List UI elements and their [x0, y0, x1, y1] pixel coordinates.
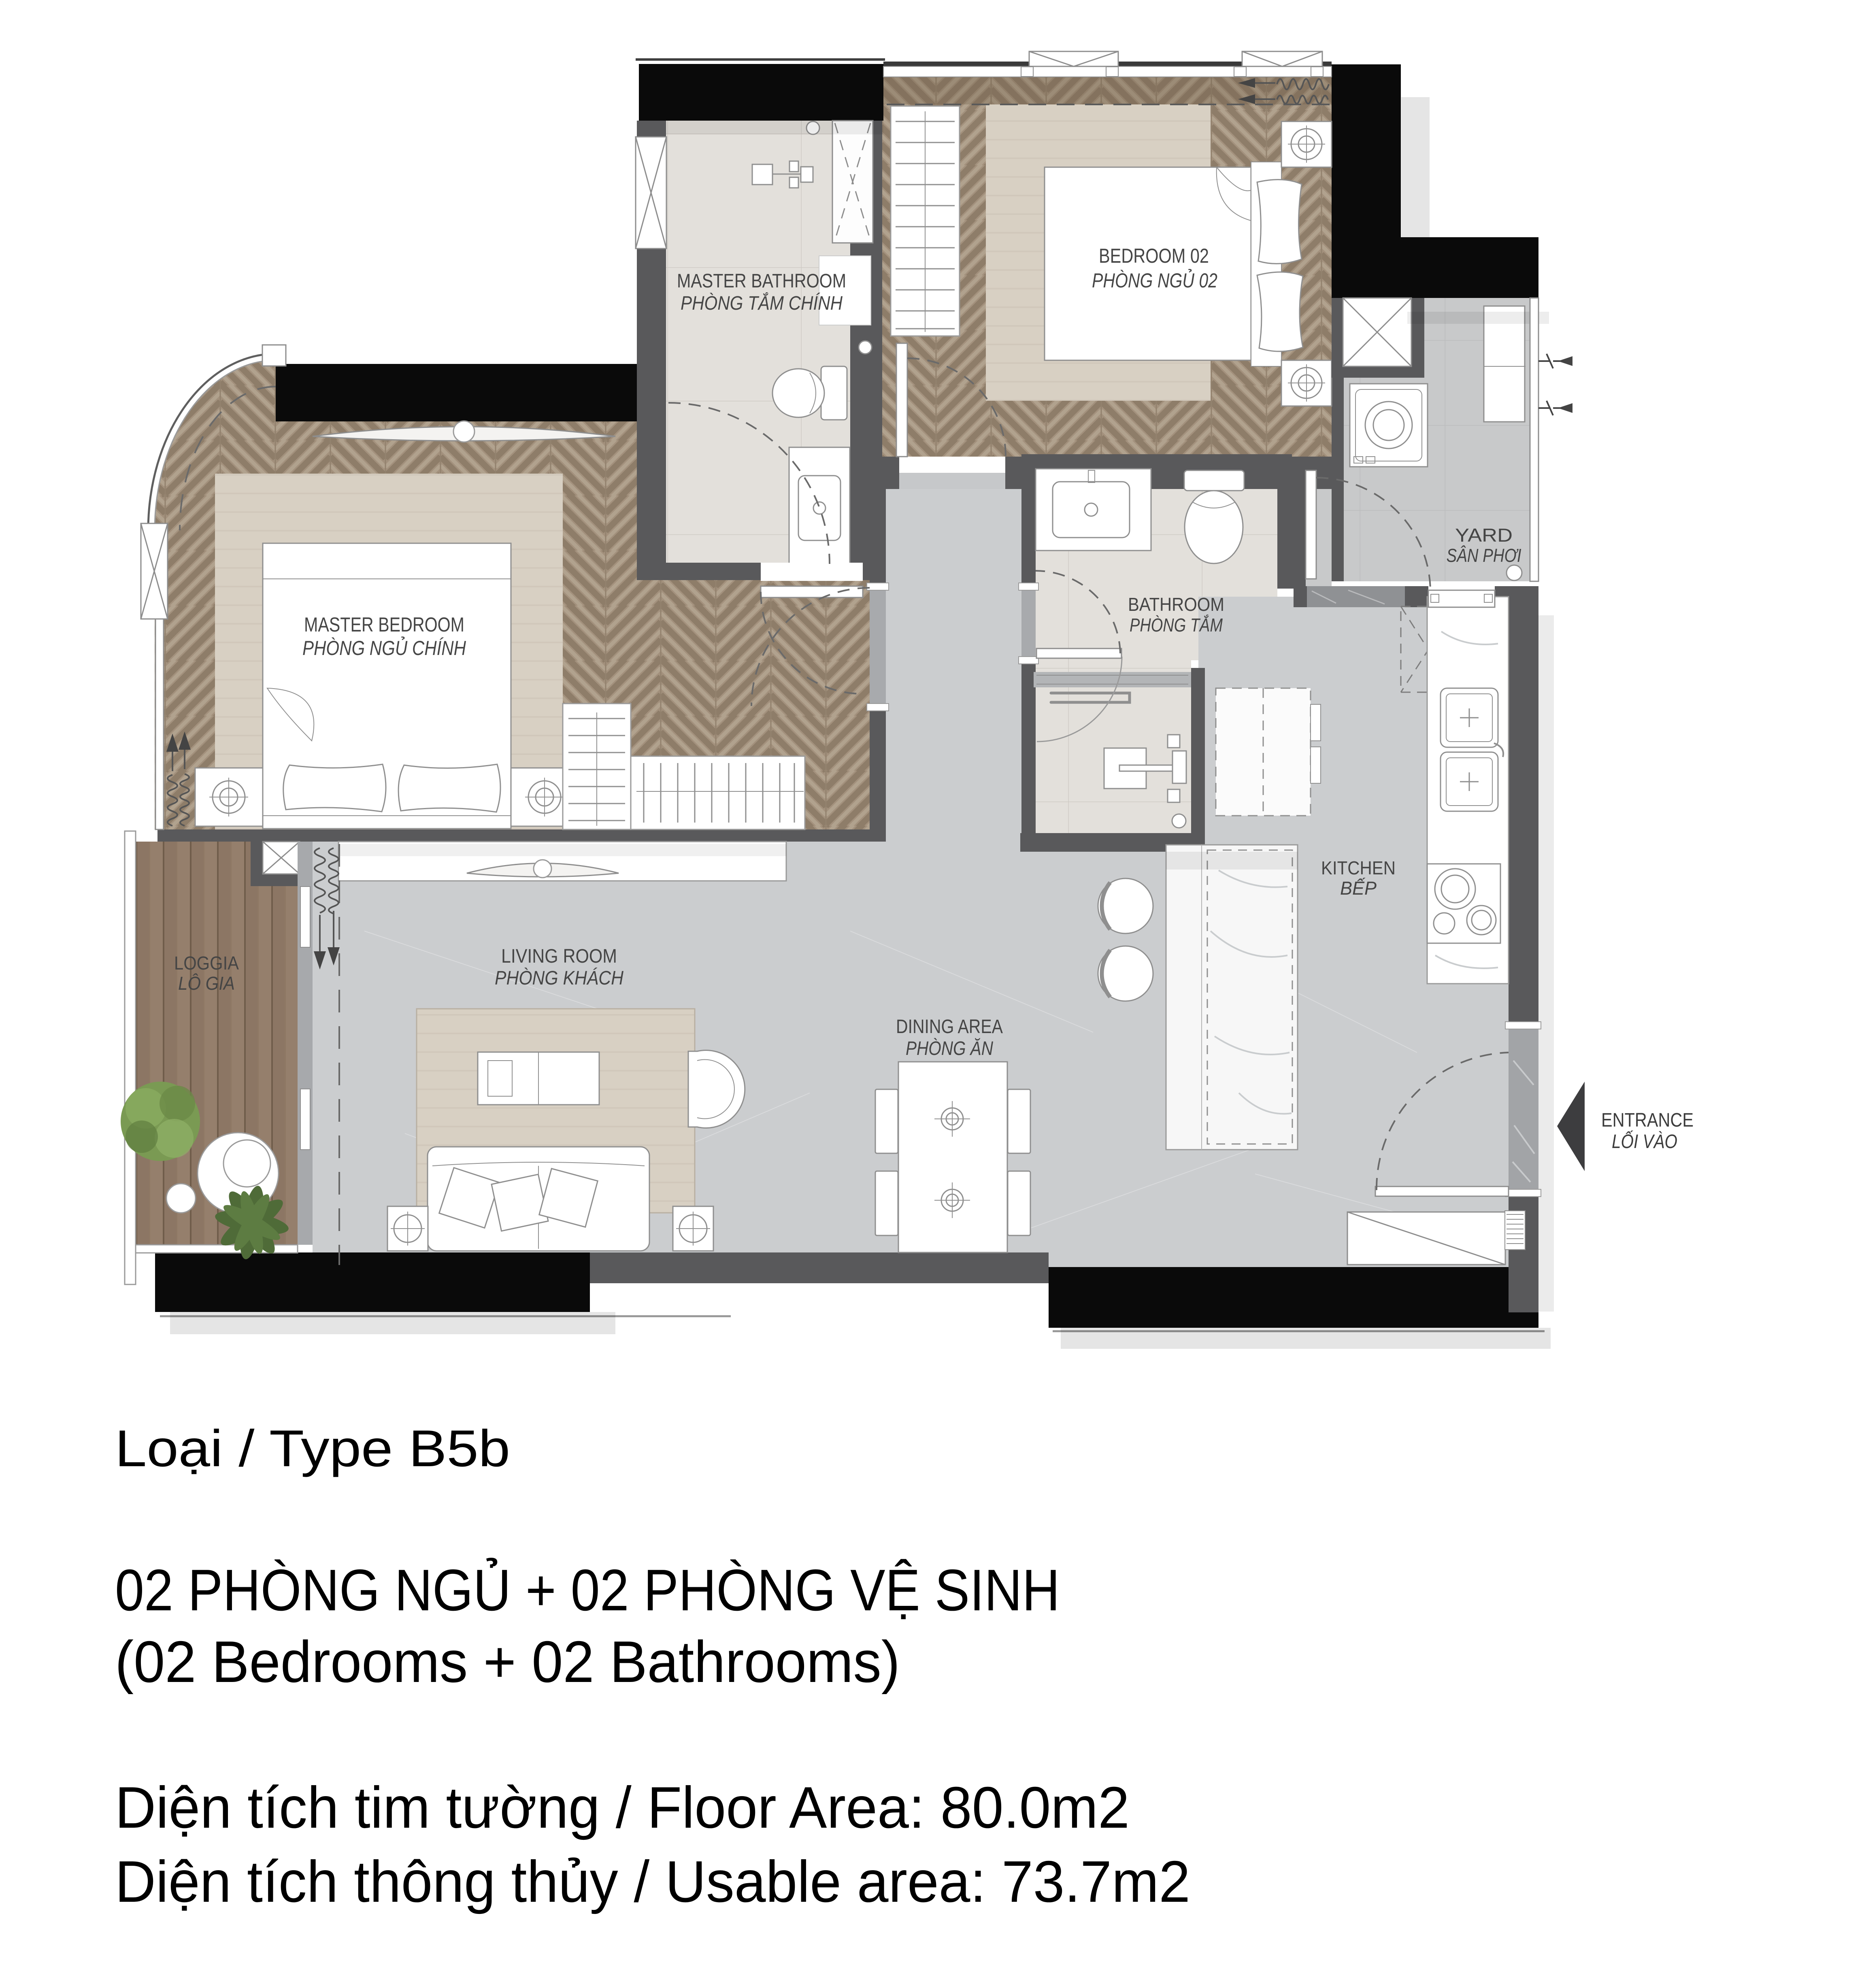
svg-text:PHÒNG TẮM: PHÒNG TẮM: [1130, 614, 1223, 636]
svg-text:Loại / Type B5b: Loại / Type B5b: [115, 1420, 510, 1478]
svg-text:BATHROOM: BATHROOM: [1128, 594, 1224, 615]
svg-text:PHÒNG NGỦ 02: PHÒNG NGỦ 02: [1092, 269, 1217, 292]
svg-text:LIVING ROOM: LIVING ROOM: [501, 946, 617, 967]
svg-text:ENTRANCE: ENTRANCE: [1601, 1110, 1694, 1131]
svg-text:PHÒNG NGỦ CHÍNH: PHÒNG NGỦ CHÍNH: [302, 636, 466, 659]
svg-text:BẾP: BẾP: [1340, 878, 1377, 899]
svg-text:LOGGIA: LOGGIA: [174, 953, 239, 974]
svg-text:MASTER BATHROOM: MASTER BATHROOM: [677, 270, 846, 292]
svg-text:Diện tích tim tường / Floor Ar: Diện tích tim tường / Floor Area: 80.0m2: [115, 1775, 1130, 1840]
svg-text:PHÒNG ĂN: PHÒNG ĂN: [906, 1038, 993, 1059]
svg-text:Diện tích thông thủy / Usable: Diện tích thông thủy / Usable area: 73.7…: [115, 1849, 1190, 1914]
svg-text:BEDROOM 02: BEDROOM 02: [1099, 245, 1209, 267]
svg-text:(02 Bedrooms + 02 Bathrooms): (02 Bedrooms + 02 Bathrooms): [115, 1629, 900, 1695]
svg-text:LỐI VÀO: LỐI VÀO: [1612, 1130, 1677, 1152]
svg-text:02 PHÒNG NGỦ + 02 PHÒNG VỆ SIN: 02 PHÒNG NGỦ + 02 PHÒNG VỆ SINH: [115, 1557, 1060, 1623]
svg-text:DINING AREA: DINING AREA: [896, 1016, 1003, 1038]
svg-text:SÂN PHƠI: SÂN PHƠI: [1447, 545, 1521, 566]
svg-text:YARD: YARD: [1455, 525, 1513, 546]
svg-text:LÔ GIA: LÔ GIA: [178, 973, 235, 994]
svg-text:PHÒNG KHÁCH: PHÒNG KHÁCH: [495, 967, 623, 989]
svg-text:MASTER BEDROOM: MASTER BEDROOM: [304, 613, 464, 636]
svg-text:KITCHEN: KITCHEN: [1321, 857, 1396, 878]
svg-text:PHÒNG TẮM CHÍNH: PHÒNG TẮM CHÍNH: [681, 292, 843, 314]
